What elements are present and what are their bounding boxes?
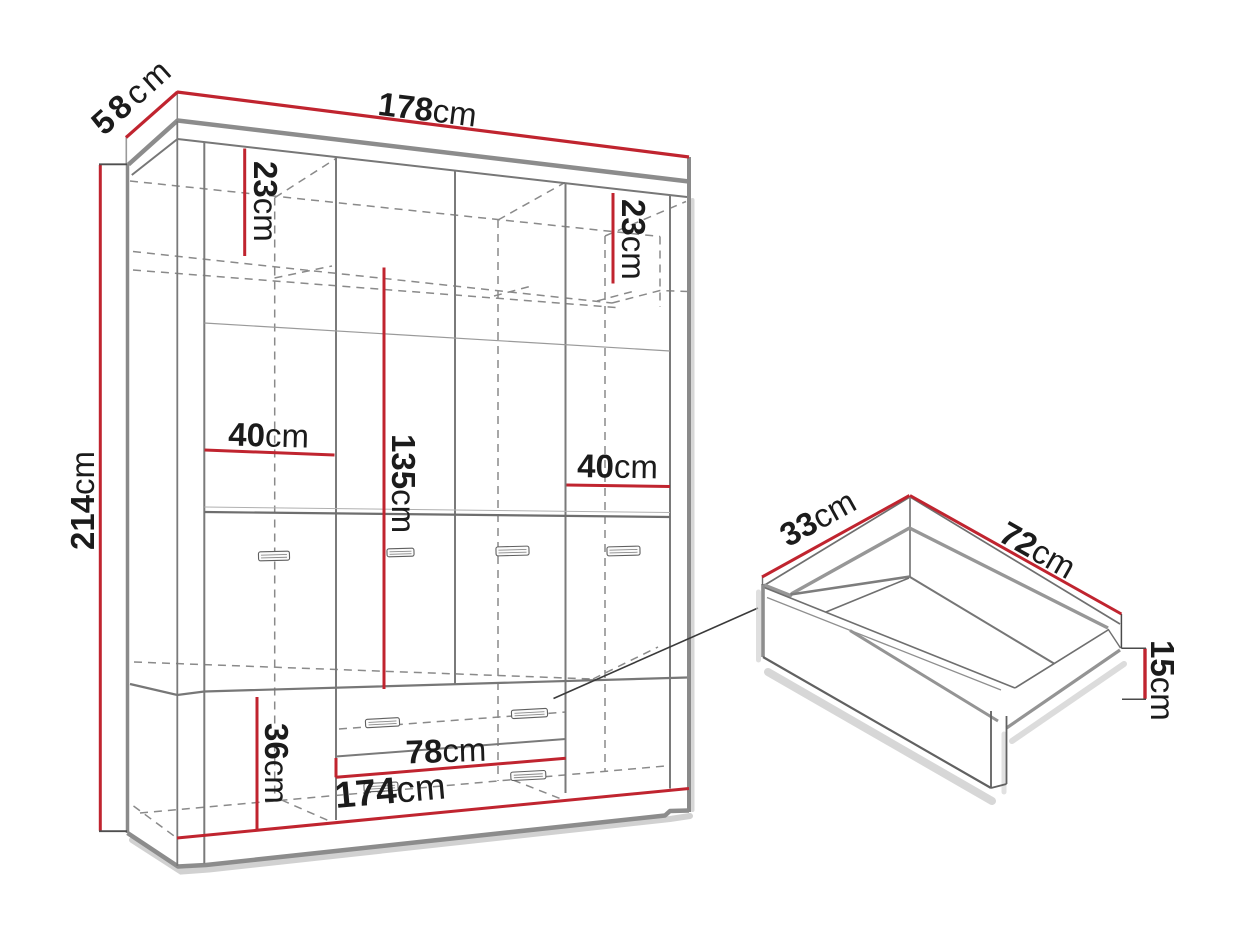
svg-text:174cm: 174cm [333,765,447,816]
svg-text:23cm: 23cm [247,161,284,242]
svg-text:178cm: 178cm [376,85,479,134]
svg-text:36cm: 36cm [258,723,295,804]
svg-text:40cm: 40cm [228,416,310,455]
svg-text:78cm: 78cm [405,731,487,771]
svg-text:40cm: 40cm [577,447,658,485]
svg-text:23cm: 23cm [615,199,652,280]
svg-text:214cm: 214cm [64,451,101,550]
svg-text:135cm: 135cm [385,434,422,533]
svg-text:15cm: 15cm [1144,640,1181,721]
svg-text:33cm: 33cm [773,482,862,553]
